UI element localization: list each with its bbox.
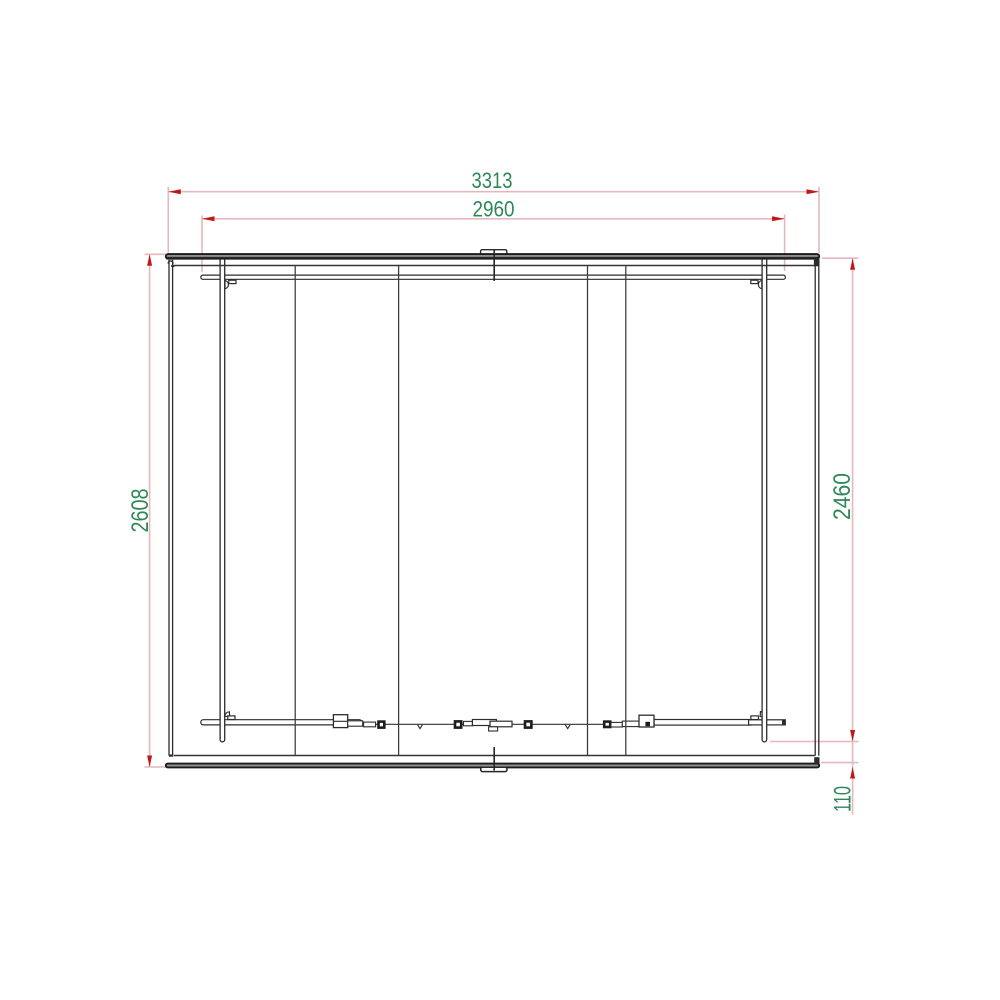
svg-text:110: 110 xyxy=(829,786,856,812)
svg-text:2460: 2460 xyxy=(829,473,856,520)
svg-text:2960: 2960 xyxy=(473,197,515,222)
svg-text:3313: 3313 xyxy=(472,168,513,193)
svg-text:2608: 2608 xyxy=(127,489,154,533)
